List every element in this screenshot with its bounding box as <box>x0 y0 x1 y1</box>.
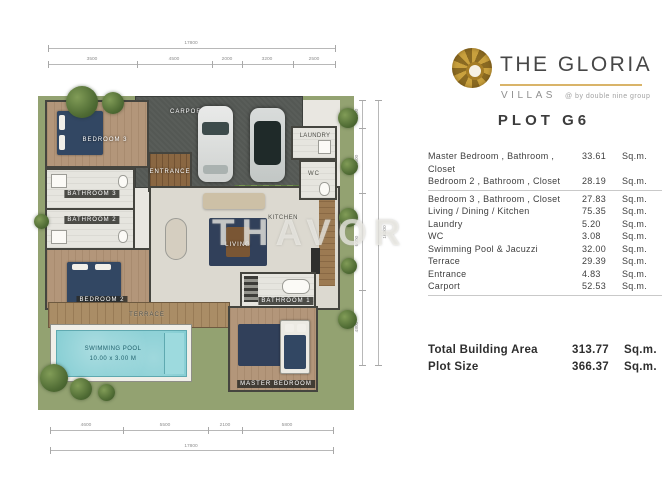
dim-label: 17800 <box>184 41 197 46</box>
dim-label: 2500 <box>309 57 320 62</box>
jacuzzi <box>164 333 184 374</box>
area-value: 75.35 <box>582 205 622 218</box>
area-name: Living / Dining / Kitchen <box>428 205 582 218</box>
area-table-row: Living / Dining / Kitchen 75.35 Sq.m. <box>428 205 662 218</box>
bush <box>70 378 92 400</box>
area-value: 27.83 <box>582 193 622 206</box>
brand-byline: @ by double nine group <box>565 93 650 100</box>
area-value: 5.20 <box>582 218 622 231</box>
dim-line-top-segments <box>48 64 335 65</box>
dim-label: 3200 <box>262 57 273 62</box>
area-unit: Sq.m. <box>622 280 658 293</box>
bush <box>338 108 358 128</box>
page: 17800 3500 4500 2000 3200 2500 1000 4500… <box>0 0 668 500</box>
bathroom-2: BATHROOM 2 <box>45 208 135 250</box>
total-building-area-row: Total Building Area 313.77 Sq.m. <box>428 342 662 359</box>
dim-label: 5800 <box>282 423 293 428</box>
total-name: Plot Size <box>428 359 572 376</box>
brand-subtitle: VILLAS <box>501 90 556 101</box>
area-table-row: Bedroom 2 , Bathroom , Closet 28.19 Sq.m… <box>428 175 662 191</box>
pool-label-2: 10.00 x 3.00 M <box>90 356 137 362</box>
master-bedroom: MASTER BEDROOM <box>228 306 318 392</box>
plot-size-row: Plot Size 366.37 Sq.m. <box>428 359 662 376</box>
area-unit: Sq.m. <box>622 255 658 268</box>
shower <box>51 174 67 188</box>
bathroom-1: BATHROOM 1 <box>240 272 316 310</box>
area-table-row: Swimming Pool & Jacuzzi 32.00 Sq.m. <box>428 243 662 256</box>
area-table-row: WC 3.08 Sq.m. <box>428 230 662 243</box>
area-name: Carport <box>428 280 582 293</box>
totals: Total Building Area 313.77 Sq.m. Plot Si… <box>428 342 662 376</box>
pool-label-1: SWIMMING POOL <box>85 346 142 352</box>
area-value: 29.39 <box>582 255 622 268</box>
terrace-label: TERRACE <box>129 312 165 318</box>
tree <box>102 92 124 114</box>
area-unit: Sq.m. <box>622 243 658 256</box>
toilet <box>118 230 128 243</box>
total-unit: Sq.m. <box>624 359 662 376</box>
bush <box>341 258 357 274</box>
area-unit: Sq.m. <box>622 218 658 231</box>
wc-label: WC <box>308 171 320 177</box>
area-value: 32.00 <box>582 243 622 256</box>
bush <box>338 310 357 329</box>
bathroom-2-label: BATHROOM 2 <box>64 216 119 224</box>
dining-table <box>165 218 187 260</box>
area-table-row: Bedroom 3 , Bathroom , Closet 27.83 Sq.m… <box>428 193 662 206</box>
master-rug <box>238 324 282 366</box>
area-name: Laundry <box>428 218 582 231</box>
dim-line-bottom-segments <box>50 430 333 431</box>
dim-label: 3500 <box>87 57 98 62</box>
area-name: Swimming Pool & Jacuzzi <box>428 243 582 256</box>
area-unit: Sq.m. <box>622 175 658 188</box>
bathroom-1-label: BATHROOM 1 <box>258 297 313 305</box>
bathroom-3-label: BATHROOM 3 <box>64 190 119 198</box>
area-name: WC <box>428 230 582 243</box>
bedroom-3: BEDROOM 3 <box>45 100 149 168</box>
stairs <box>244 276 258 302</box>
area-table-row: Master Bedroom , Bathroom , Closet 33.61… <box>428 150 662 175</box>
laundry-label: LAUNDRY <box>300 133 331 139</box>
plot-title: PLOT G6 <box>430 112 658 129</box>
dim-label: 5500 <box>160 423 171 428</box>
brand-rule <box>500 84 642 86</box>
car-icon <box>198 106 233 182</box>
area-value: 33.61 <box>582 150 622 175</box>
toilet <box>118 175 128 188</box>
area-table-row: Entrance 4.83 Sq.m. <box>428 268 662 281</box>
area-table-row: Carport 52.53 Sq.m. <box>428 280 662 296</box>
wc: WC <box>299 160 337 200</box>
dim-line-bottom-total <box>50 450 333 451</box>
area-value: 28.19 <box>582 175 622 188</box>
entrance-label: ENTRANCE <box>149 169 190 175</box>
area-value: 4.83 <box>582 268 622 281</box>
swimming-pool: SWIMMING POOL 10.00 x 3.00 M <box>56 330 187 377</box>
area-name: Terrace <box>428 255 582 268</box>
area-table: Master Bedroom , Bathroom , Closet 33.61… <box>428 150 662 296</box>
area-unit: Sq.m. <box>622 268 658 281</box>
bush <box>40 364 68 392</box>
bedroom-3-label: BEDROOM 3 <box>82 137 127 143</box>
dim-label: 4600 <box>81 423 92 428</box>
area-value: 3.08 <box>582 230 622 243</box>
bathtub <box>282 279 310 294</box>
washing-machine <box>318 140 331 154</box>
pool-deck: SWIMMING POOL 10.00 x 3.00 M <box>50 324 192 382</box>
dim-label: 2000 <box>222 57 233 62</box>
bed <box>280 320 310 374</box>
total-unit: Sq.m. <box>624 342 662 359</box>
area-unit: Sq.m. <box>622 193 658 206</box>
total-value: 366.37 <box>572 359 624 376</box>
bathroom-3: BATHROOM 3 <box>45 168 135 210</box>
total-value: 313.77 <box>572 342 624 359</box>
dim-label: 2100 <box>220 423 231 428</box>
area-table-row: Laundry 5.20 Sq.m. <box>428 218 662 231</box>
sofa <box>203 193 265 209</box>
dim-line-top-total <box>48 48 335 49</box>
bush <box>34 214 49 229</box>
shower <box>51 230 67 244</box>
master-bedroom-label: MASTER BEDROOM <box>237 380 315 388</box>
toilet <box>319 182 330 196</box>
area-unit: Sq.m. <box>622 205 658 218</box>
area-name: Master Bedroom , Bathroom , Closet <box>428 150 582 175</box>
area-name: Bedroom 3 , Bathroom , Closet <box>428 193 582 206</box>
area-unit: Sq.m. <box>622 150 658 175</box>
gloria-logo-icon <box>452 48 492 88</box>
dim-label: 17800 <box>184 444 197 449</box>
area-table-row: Terrace 29.39 Sq.m. <box>428 255 662 268</box>
laundry: LAUNDRY <box>291 126 337 160</box>
brand-title: THE GLORIA <box>500 53 652 77</box>
watermark: THAVOR <box>212 212 407 254</box>
total-name: Total Building Area <box>428 342 572 359</box>
area-name: Bedroom 2 , Bathroom , Closet <box>428 175 582 188</box>
bush <box>98 384 115 401</box>
area-unit: Sq.m. <box>622 230 658 243</box>
area-name: Entrance <box>428 268 582 281</box>
car-icon <box>250 108 285 182</box>
area-value: 52.53 <box>582 280 622 293</box>
dim-label: 4500 <box>169 57 180 62</box>
tree <box>66 86 98 118</box>
bush <box>341 158 358 175</box>
